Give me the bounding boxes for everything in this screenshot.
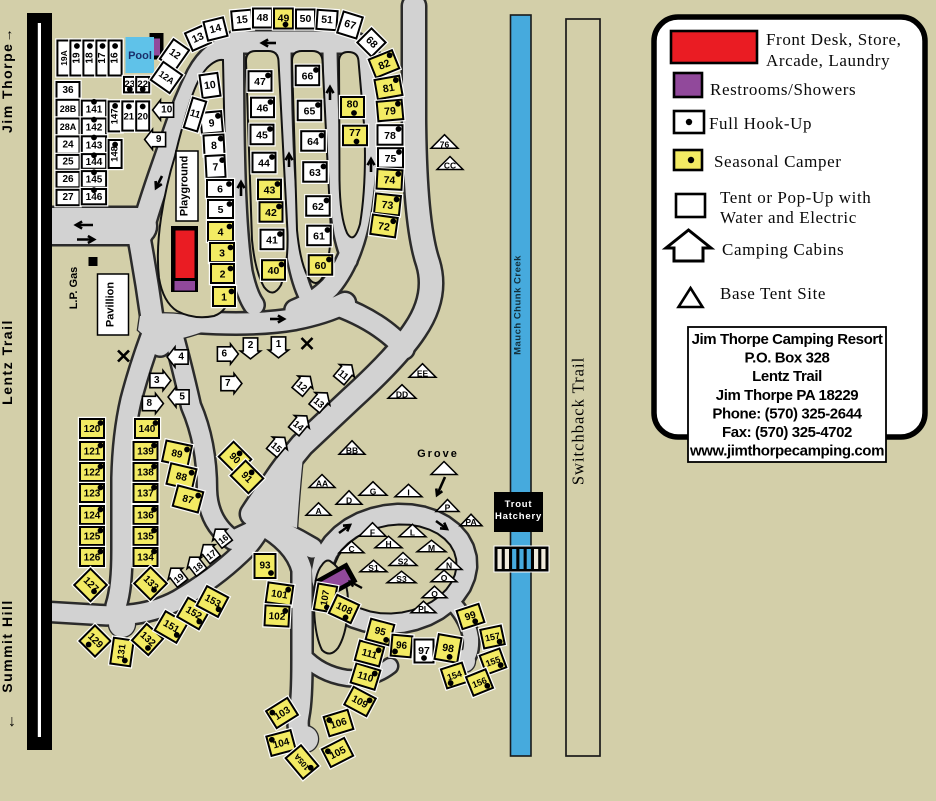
svg-text:8: 8 [147,398,153,409]
svg-text:25: 25 [62,157,74,168]
svg-text:10: 10 [203,79,216,93]
svg-text:DD: DD [396,389,408,399]
svg-text:F: F [370,527,375,537]
svg-text:I: I [407,488,409,498]
svg-text:Pool: Pool [128,50,152,62]
svg-text:97: 97 [418,645,430,657]
svg-text:S1: S1 [368,563,379,573]
svg-text:64: 64 [307,136,319,148]
svg-text:PA: PA [465,517,476,527]
svg-text:G: G [370,486,377,496]
svg-text:41: 41 [266,235,278,247]
svg-text:18: 18 [84,52,95,64]
svg-text:Summit Hill: Summit Hill [0,599,15,693]
svg-text:74: 74 [383,174,395,187]
svg-text:Jim Thorpe Camping Resort: Jim Thorpe Camping Resort [692,331,883,348]
svg-text:120: 120 [84,424,101,435]
svg-text:27: 27 [62,192,74,203]
svg-text:122: 122 [84,468,101,479]
svg-text:20: 20 [137,112,148,123]
svg-text:144: 144 [86,157,103,168]
svg-text:L: L [410,528,415,538]
svg-text:121: 121 [84,447,101,458]
svg-text:76: 76 [440,139,450,149]
svg-text:Seasonal Camper: Seasonal Camper [714,152,842,171]
svg-text:1: 1 [276,339,282,350]
svg-text:9: 9 [208,117,215,129]
svg-text:145: 145 [86,175,103,186]
svg-text:80: 80 [347,99,359,111]
svg-text:PL: PL [418,604,429,614]
svg-text:73: 73 [381,199,394,212]
svg-text:Restrooms/Showers: Restrooms/Showers [710,80,856,99]
svg-text:H: H [385,539,391,549]
svg-text:63: 63 [309,167,321,179]
svg-text:8: 8 [211,140,218,152]
svg-text:24: 24 [62,139,74,150]
svg-text:143: 143 [86,141,103,152]
svg-text:49: 49 [278,13,290,25]
svg-text:Trout: Trout [505,499,533,510]
svg-text:Full Hook-Up: Full Hook-Up [709,114,812,133]
svg-text:146: 146 [86,192,103,203]
svg-text:148: 148 [110,146,121,162]
svg-text:3: 3 [154,375,160,386]
svg-text:62: 62 [312,201,324,213]
svg-text:36: 36 [62,85,74,96]
svg-text:7: 7 [212,161,219,173]
svg-text:51: 51 [321,14,334,27]
svg-text:102: 102 [268,611,286,623]
svg-text:98: 98 [441,642,455,656]
svg-text:Base Tent Site: Base Tent Site [720,284,826,303]
svg-text:139: 139 [137,447,154,458]
svg-text:Grove: Grove [417,448,459,460]
svg-text:5: 5 [179,392,185,403]
svg-text:23: 23 [125,79,136,90]
svg-text:AA: AA [316,479,328,489]
svg-text:81: 81 [382,82,396,96]
svg-text:17: 17 [97,52,108,64]
svg-text:D: D [346,495,352,505]
svg-text:Fax: (570) 325-4702: Fax: (570) 325-4702 [722,424,852,441]
svg-text:16: 16 [110,52,121,64]
svg-text:10: 10 [161,105,173,116]
svg-text:N: N [446,561,452,571]
svg-text:140: 140 [139,424,156,435]
svg-text:60: 60 [315,260,327,272]
svg-text:7: 7 [225,378,231,389]
svg-text:28A: 28A [60,122,77,132]
svg-text:78: 78 [384,130,396,142]
svg-text:42: 42 [265,207,277,219]
svg-text:123: 123 [84,489,101,500]
svg-text:66: 66 [302,71,314,83]
svg-text:Playground: Playground [179,156,191,217]
svg-text:77: 77 [349,127,361,139]
svg-text:4: 4 [218,227,224,239]
svg-text:19: 19 [71,52,82,64]
svg-text:Switchback Trail: Switchback Trail [569,357,588,485]
svg-text:P: P [445,503,451,513]
svg-text:45: 45 [256,130,268,142]
svg-text:9: 9 [156,134,162,145]
svg-text:Front Desk, Store,: Front Desk, Store, [766,30,901,49]
svg-text:93: 93 [259,561,271,572]
svg-text:Q: Q [431,589,438,599]
svg-text:48: 48 [257,12,269,24]
svg-text:BB: BB [346,445,358,455]
svg-text:EE: EE [417,368,429,378]
svg-text:5: 5 [218,204,224,216]
svg-text:61: 61 [313,231,325,243]
svg-text:S3: S3 [396,574,407,584]
svg-text:19A: 19A [59,50,69,66]
svg-text:147: 147 [110,108,121,124]
svg-text:2: 2 [248,340,254,351]
svg-text:44: 44 [258,158,270,170]
svg-text:L.P. Gas: L.P. Gas [68,267,80,310]
svg-text:1: 1 [221,292,227,304]
svg-text:40: 40 [268,265,280,277]
svg-text:2: 2 [220,269,226,281]
svg-text:124: 124 [84,511,101,522]
svg-text:Mauch Chunk Creek: Mauch Chunk Creek [513,255,524,355]
svg-text:15: 15 [236,14,249,27]
svg-text:Tent or Pop-Up with: Tent or Pop-Up with [720,188,871,207]
svg-text:75: 75 [385,153,397,165]
svg-text:21: 21 [124,112,135,123]
svg-text:141: 141 [86,105,103,116]
svg-text:CC: CC [444,161,456,171]
svg-text:↓: ↓ [8,713,16,730]
svg-text:C: C [348,544,354,554]
svg-text:47: 47 [254,76,266,88]
svg-text:28B: 28B [60,104,77,114]
svg-text:P.O. Box 328: P.O. Box 328 [745,350,830,367]
svg-text:M: M [428,543,435,553]
svg-text:125: 125 [84,532,101,543]
svg-text:126: 126 [84,553,101,564]
svg-text:Jim Thorpe PA 18229: Jim Thorpe PA 18229 [716,387,859,404]
svg-text:Camping Cabins: Camping Cabins [722,240,844,259]
svg-text:72: 72 [377,220,390,234]
svg-text:137: 137 [137,489,154,500]
svg-text:96: 96 [395,640,407,652]
svg-text:46: 46 [257,103,269,115]
svg-text:Lentz Trail: Lentz Trail [752,368,822,385]
svg-text:Lentz Trail: Lentz Trail [0,319,15,405]
svg-text:Phone: (570) 325-2644: Phone: (570) 325-2644 [712,405,862,422]
svg-text:Jim Thorpe→: Jim Thorpe→ [0,27,15,133]
svg-text:26: 26 [62,174,74,185]
svg-text:O: O [441,573,448,583]
svg-text:4: 4 [178,352,184,363]
svg-text:136: 136 [137,511,154,522]
svg-text:22: 22 [137,79,148,90]
svg-text:S2: S2 [398,557,409,567]
svg-text:Hatchery: Hatchery [495,511,542,522]
svg-text:135: 135 [137,532,154,543]
svg-text:43: 43 [264,185,276,197]
svg-text:138: 138 [137,468,154,479]
svg-text:142: 142 [86,123,103,134]
svg-text:6: 6 [222,349,228,360]
svg-text:79: 79 [384,105,397,118]
svg-text:134: 134 [137,553,154,564]
svg-text:6: 6 [217,184,223,196]
svg-text:www.jimthorpecamping.com: www.jimthorpecamping.com [689,443,884,460]
svg-text:Water and Electric: Water and Electric [720,208,857,227]
svg-text:Pavillion: Pavillion [105,282,117,328]
svg-text:65: 65 [304,106,316,118]
svg-text:A: A [315,506,321,516]
svg-text:3: 3 [219,248,225,260]
svg-text:Arcade, Laundry: Arcade, Laundry [766,51,890,70]
svg-text:50: 50 [300,13,312,25]
svg-text:131: 131 [115,643,128,661]
